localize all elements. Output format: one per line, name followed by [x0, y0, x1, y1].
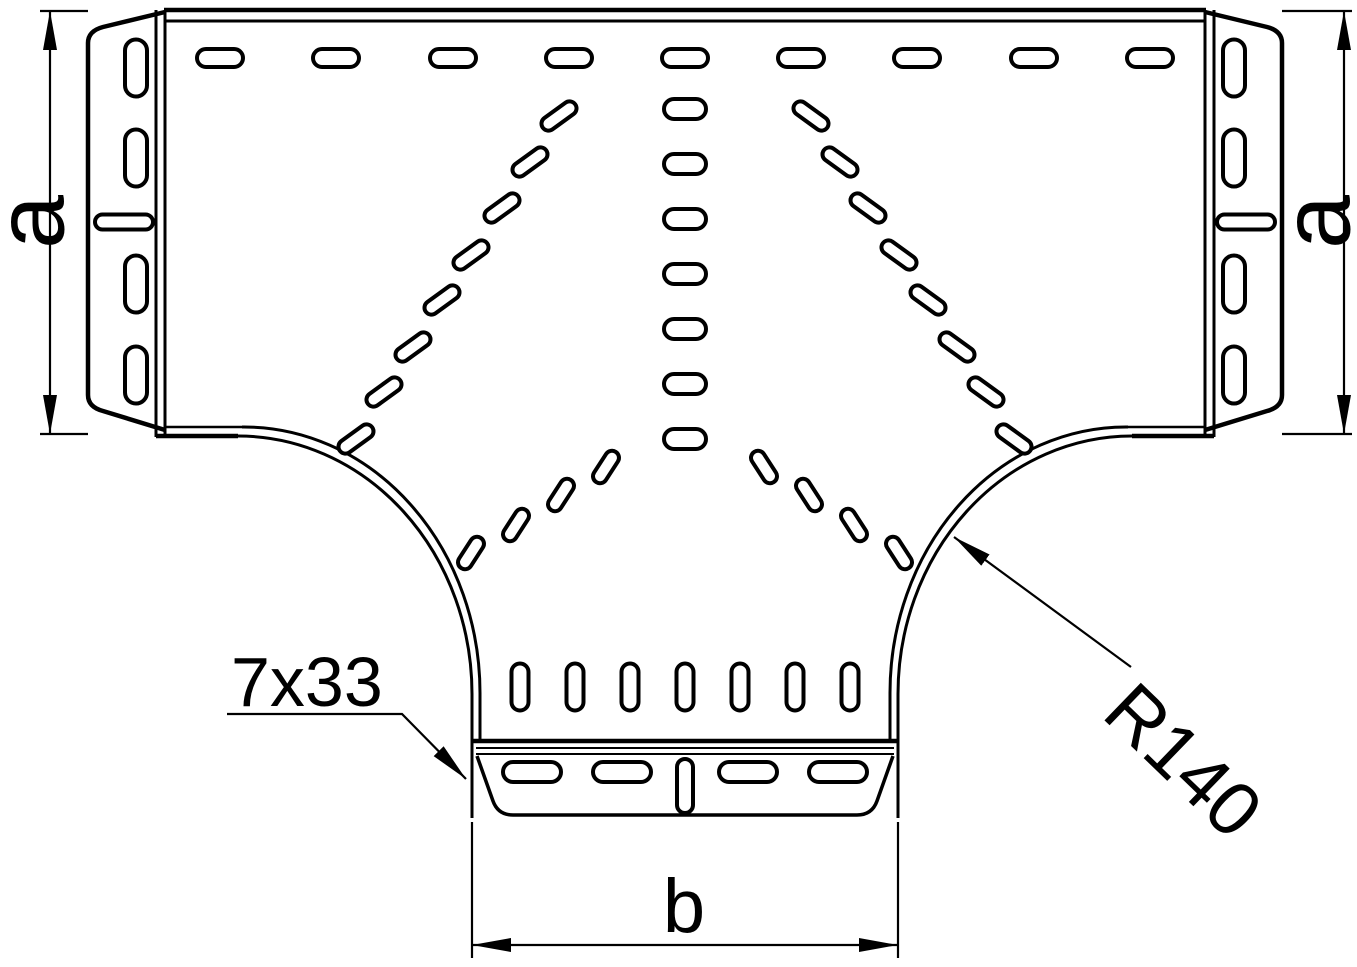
- right-flange-slot-vertical: [1223, 40, 1245, 97]
- right-inner-arc-slot: [793, 476, 824, 514]
- left-fan-slot: [364, 375, 405, 410]
- top-row-slot: [662, 49, 708, 67]
- center-column-slot: [664, 374, 706, 394]
- top-row-slot: [1127, 49, 1173, 67]
- left-fan-slot: [422, 283, 463, 318]
- slot-spec-label: 7x33: [231, 643, 383, 721]
- left-inner-arc-slot: [590, 448, 621, 486]
- top-row-slot: [894, 49, 940, 67]
- bottom-flange-slot-horizontal: [809, 762, 867, 782]
- dimension-b: b: [472, 822, 898, 958]
- left-flange-slot-horizontal: [95, 215, 153, 230]
- left-flange-slot-vertical: [125, 256, 147, 313]
- center-column-slot: [664, 264, 706, 284]
- branch-row-slot: [842, 664, 859, 711]
- center-column-slot: [664, 99, 706, 119]
- left-flange-slot-vertical: [125, 347, 147, 404]
- right-inner-arc-slot: [883, 534, 914, 572]
- left-fan-slot: [451, 238, 492, 273]
- top-row-slot: [1011, 49, 1057, 67]
- tee-technical-drawing: a a b 7x33 R140: [0, 0, 1357, 967]
- right-flange-slot-vertical: [1223, 256, 1245, 313]
- right-inner-arc-slot: [748, 448, 779, 486]
- branch-row-slot: [787, 664, 804, 711]
- right-flange-slot-vertical: [1223, 130, 1245, 187]
- center-column-slot: [664, 429, 706, 449]
- right-fan-slot: [820, 145, 861, 180]
- top-row-slot: [546, 49, 592, 67]
- branch-row-slot: [732, 664, 749, 711]
- center-column-slot: [664, 154, 706, 174]
- left-curve-outer: [238, 436, 472, 818]
- dim-a-right-label: a: [1262, 195, 1357, 249]
- left-flange-slot-vertical: [125, 40, 147, 97]
- right-fan-slot: [966, 375, 1007, 410]
- dimension-a-right: a: [1262, 11, 1357, 434]
- branch-row-slot: [512, 664, 529, 711]
- left-flange-slot-vertical: [125, 130, 147, 187]
- dim-a-left-label: a: [0, 195, 85, 249]
- right-fan-slot: [994, 422, 1035, 457]
- branch-row-slot: [622, 664, 639, 711]
- right-inner-arc-slot: [838, 506, 869, 544]
- left-fan-slot: [393, 330, 434, 365]
- branch-row-slot: [677, 664, 694, 711]
- right-flange-slot-vertical: [1223, 347, 1245, 404]
- top-row-slot: [197, 49, 243, 67]
- right-end-seam: [1205, 10, 1214, 437]
- right-fan-slot: [908, 283, 949, 318]
- left-fan-slot: [539, 99, 580, 134]
- bottom-flange-slot-horizontal: [719, 762, 777, 782]
- bottom-flange-slot-horizontal: [593, 762, 651, 782]
- slot-spec-callout: 7x33: [227, 643, 466, 779]
- dim-b-label: b: [663, 864, 705, 949]
- right-curve-outer: [898, 436, 1132, 818]
- top-row-slot: [430, 49, 476, 67]
- left-fan-slot: [336, 422, 377, 457]
- top-row-slot: [778, 49, 824, 67]
- slot-spec-leader: [227, 714, 466, 779]
- right-fan-slot: [937, 330, 978, 365]
- left-fan-slot: [510, 145, 551, 180]
- center-column-slot: [664, 319, 706, 339]
- right-fan-slot: [848, 191, 889, 226]
- radius-leader: [954, 537, 1131, 667]
- bottom-flange-slot-vertical: [677, 759, 693, 813]
- left-inner-arc-slot: [500, 506, 531, 544]
- center-column-slot: [664, 209, 706, 229]
- bottom-flange-slot-horizontal: [503, 762, 561, 782]
- left-fan-slot: [482, 191, 523, 226]
- dimension-a-left: a: [0, 11, 88, 434]
- branch-row-slot: [567, 664, 584, 711]
- left-inner-arc-slot: [545, 476, 576, 514]
- drawing-page: a a b 7x33 R140: [0, 0, 1357, 967]
- radius-label: R140: [1088, 667, 1278, 854]
- right-fan-slot: [791, 99, 832, 134]
- top-row-slot: [313, 49, 359, 67]
- left-inner-arc-slot: [455, 534, 486, 572]
- right-fan-slot: [879, 238, 920, 273]
- radius-callout: R140: [954, 537, 1278, 854]
- left-end-seam: [156, 10, 165, 437]
